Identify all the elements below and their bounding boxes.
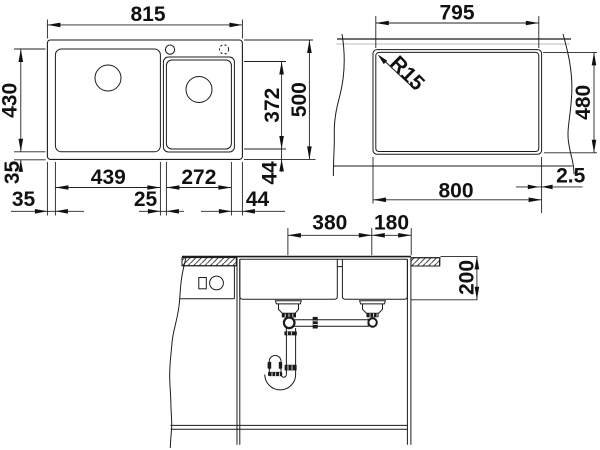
svg-text:800: 800 bbox=[438, 180, 473, 203]
svg-text:200: 200 bbox=[456, 260, 479, 295]
svg-text:35: 35 bbox=[12, 188, 36, 211]
svg-text:180: 180 bbox=[374, 212, 409, 235]
svg-text:430: 430 bbox=[0, 83, 22, 118]
svg-text:272: 272 bbox=[181, 166, 216, 189]
svg-text:44: 44 bbox=[246, 188, 270, 211]
svg-text:380: 380 bbox=[312, 212, 347, 235]
svg-text:25: 25 bbox=[134, 188, 158, 211]
svg-text:R15: R15 bbox=[385, 52, 429, 96]
svg-text:815: 815 bbox=[130, 3, 165, 26]
svg-text:44: 44 bbox=[259, 161, 282, 185]
svg-text:2.5: 2.5 bbox=[556, 165, 586, 188]
svg-text:480: 480 bbox=[572, 85, 595, 120]
svg-text:35: 35 bbox=[1, 161, 24, 185]
svg-text:439: 439 bbox=[91, 166, 126, 189]
svg-text:500: 500 bbox=[288, 82, 311, 117]
svg-text:372: 372 bbox=[261, 88, 284, 123]
svg-text:795: 795 bbox=[439, 2, 474, 25]
